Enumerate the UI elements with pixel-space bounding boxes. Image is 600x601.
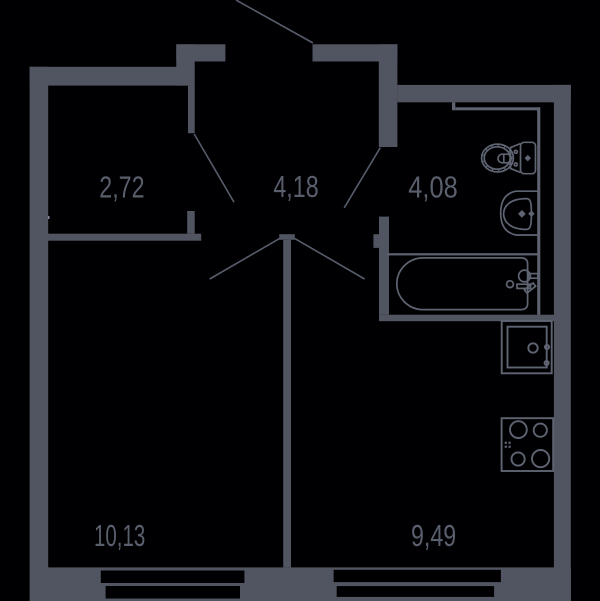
svg-text:2,72: 2,72: [99, 169, 144, 204]
svg-text:4,18: 4,18: [273, 169, 318, 204]
svg-text:9,49: 9,49: [411, 518, 456, 553]
svg-text:10,13: 10,13: [94, 518, 145, 553]
svg-text:4,08: 4,08: [408, 170, 457, 205]
